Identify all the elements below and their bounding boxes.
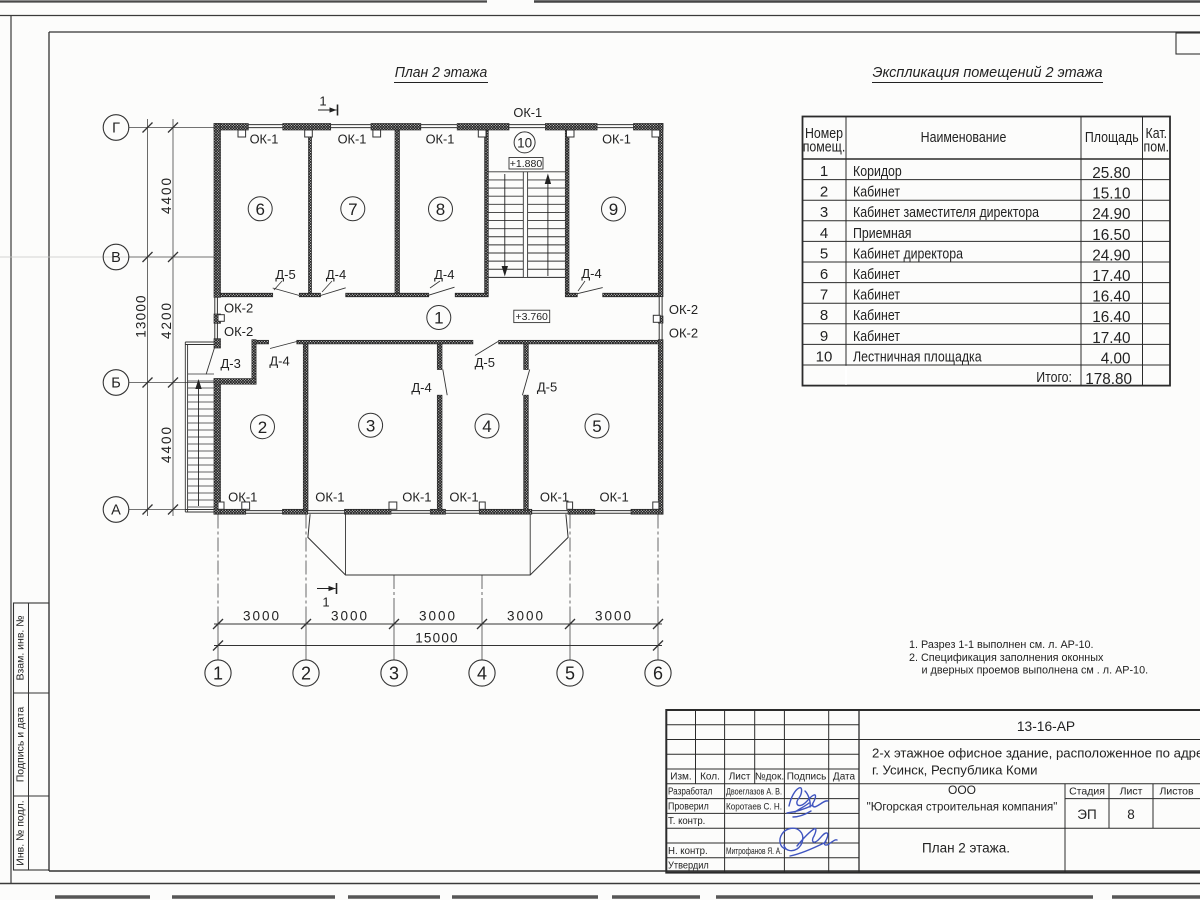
- svg-text:Кабинет: Кабинет: [853, 307, 900, 324]
- svg-text:ОК-1: ОК-1: [599, 490, 628, 505]
- svg-text:16.50: 16.50: [1092, 227, 1130, 244]
- svg-text:Д-4: Д-4: [434, 267, 454, 282]
- svg-text:Кабинет: Кабинет: [853, 328, 900, 345]
- svg-text:6: 6: [653, 664, 663, 684]
- svg-text:8: 8: [436, 200, 445, 219]
- svg-text:и дверных проемов выполнена см: и дверных проемов выполнена см . л. АР-1…: [922, 665, 1149, 677]
- svg-text:ОК-1: ОК-1: [513, 105, 542, 120]
- svg-text:Д-5: Д-5: [475, 355, 495, 370]
- svg-text:Взам. инв. №: Взам. инв. №: [15, 615, 27, 680]
- svg-text:3000: 3000: [595, 609, 633, 624]
- svg-text:4: 4: [820, 225, 828, 242]
- svg-text:Наименование: Наименование: [921, 129, 1007, 146]
- svg-text:А: А: [111, 503, 121, 519]
- svg-text:Д-3: Д-3: [221, 356, 241, 371]
- svg-text:Митрофанов Я. А.: Митрофанов Я. А.: [726, 846, 782, 856]
- svg-text:1: 1: [820, 163, 828, 180]
- svg-text:3000: 3000: [507, 609, 545, 624]
- svg-text:Коридор: Коридор: [853, 163, 902, 180]
- svg-text:Д-4: Д-4: [581, 266, 601, 281]
- svg-text:Коротаев С. Н.: Коротаев С. Н.: [726, 801, 782, 811]
- svg-text:ОК-1: ОК-1: [402, 490, 431, 505]
- svg-text:Кабинет: Кабинет: [853, 266, 900, 283]
- svg-text:Кол.: Кол.: [700, 771, 720, 782]
- svg-text:Лист: Лист: [1120, 786, 1143, 798]
- svg-text:3: 3: [389, 664, 399, 684]
- svg-text:ОК-1: ОК-1: [315, 490, 344, 505]
- svg-text:Кабинет заместителя директора: Кабинет заместителя директора: [853, 204, 1040, 221]
- svg-text:6: 6: [820, 266, 828, 283]
- svg-text:2: 2: [820, 184, 828, 201]
- svg-text:17.40: 17.40: [1092, 268, 1130, 285]
- svg-text:1: 1: [322, 595, 329, 610]
- svg-text:№док.: №док.: [755, 771, 784, 782]
- svg-text:8: 8: [820, 307, 828, 324]
- svg-text:13000: 13000: [134, 294, 149, 338]
- svg-text:13-16-АР: 13-16-АР: [1017, 719, 1075, 734]
- svg-text:2: 2: [258, 418, 267, 437]
- svg-text:Г: Г: [112, 121, 120, 137]
- svg-text:8: 8: [1127, 807, 1135, 822]
- svg-text:10: 10: [816, 348, 833, 365]
- svg-text:1. Разрез 1-1 выполнен см. л.: 1. Разрез 1-1 выполнен см. л. АР-10.: [909, 639, 1093, 651]
- svg-text:7: 7: [820, 287, 828, 304]
- svg-text:10: 10: [517, 135, 532, 150]
- svg-text:2-х этажное офисное здание, ра: 2-х этажное офисное здание, расположенно…: [872, 746, 1200, 761]
- svg-text:ОК-1: ОК-1: [540, 490, 569, 505]
- svg-text:17.40: 17.40: [1092, 330, 1130, 347]
- svg-text:24.90: 24.90: [1092, 247, 1130, 264]
- svg-text:Лестничная площадка: Лестничная площадка: [853, 348, 982, 365]
- svg-text:3: 3: [820, 204, 828, 221]
- svg-text:Инв. № подл.: Инв. № подл.: [15, 800, 27, 865]
- svg-text:16.40: 16.40: [1092, 309, 1130, 326]
- svg-text:Изм.: Изм.: [670, 771, 691, 782]
- svg-text:Подпись и дата: Подпись и дата: [15, 707, 27, 783]
- svg-text:2: 2: [301, 664, 311, 684]
- svg-text:+3.760: +3.760: [515, 311, 548, 323]
- svg-text:ОК-1: ОК-1: [602, 132, 631, 147]
- svg-text:Д-4: Д-4: [326, 267, 346, 282]
- svg-text:16.40: 16.40: [1092, 289, 1130, 306]
- svg-text:15000: 15000: [415, 631, 459, 646]
- svg-text:4200: 4200: [159, 301, 174, 339]
- svg-text:Н. контр.: Н. контр.: [668, 846, 708, 857]
- svg-text:ОК-1: ОК-1: [449, 490, 478, 505]
- svg-text:Подпись: Подпись: [787, 771, 827, 782]
- svg-text:Проверил: Проверил: [668, 801, 709, 812]
- svg-text:ОК-2: ОК-2: [669, 325, 698, 340]
- svg-text:пом.: пом.: [1144, 139, 1170, 156]
- svg-text:2. Спецификация заполнения око: 2. Спецификация заполнения оконных: [909, 652, 1104, 664]
- svg-text:3: 3: [366, 417, 375, 436]
- svg-text:4400: 4400: [159, 425, 174, 463]
- svg-text:5: 5: [820, 245, 828, 262]
- svg-text:ОК-1: ОК-1: [426, 132, 455, 147]
- svg-text:Лист: Лист: [729, 771, 751, 782]
- svg-text:помещ.: помещ.: [803, 139, 846, 156]
- svg-text:7: 7: [348, 200, 357, 219]
- svg-text:"Югорская строительная компани: "Югорская строительная компания": [867, 802, 1058, 814]
- svg-text:1: 1: [319, 94, 326, 109]
- svg-text:г. Усинск, Республика Коми: г. Усинск, Республика Коми: [872, 763, 1038, 778]
- svg-text:ООО: ООО: [948, 783, 976, 797]
- svg-text:4: 4: [477, 664, 487, 684]
- svg-text:9: 9: [820, 328, 828, 345]
- svg-text:15.10: 15.10: [1092, 186, 1130, 203]
- svg-text:Д-4: Д-4: [269, 354, 289, 369]
- svg-text:ОК-1: ОК-1: [338, 132, 367, 147]
- svg-text:ОК-1: ОК-1: [228, 490, 257, 505]
- svg-text:4.00: 4.00: [1101, 350, 1131, 367]
- svg-text:ОК-2: ОК-2: [669, 302, 698, 317]
- svg-text:1: 1: [434, 309, 443, 328]
- svg-text:6: 6: [255, 200, 264, 219]
- svg-text:В: В: [111, 250, 121, 266]
- svg-text:Кабинет: Кабинет: [853, 287, 900, 304]
- svg-text:25.80: 25.80: [1092, 165, 1130, 182]
- svg-text:План 2 этажа: План 2 этажа: [395, 64, 488, 81]
- svg-text:Экспликация помещений 2 этажа: Экспликация помещений 2 этажа: [873, 64, 1103, 81]
- svg-text:Двоеглазов А. В.: Двоеглазов А. В.: [726, 787, 782, 797]
- svg-text:Площадь: Площадь: [1085, 129, 1139, 146]
- svg-text:+1.880: +1.880: [510, 158, 543, 170]
- svg-text:Т. контр.: Т. контр.: [668, 816, 705, 827]
- svg-text:1: 1: [213, 664, 223, 684]
- svg-text:4: 4: [482, 417, 491, 436]
- svg-text:4400: 4400: [159, 176, 174, 214]
- svg-text:9: 9: [609, 200, 618, 219]
- svg-text:3000: 3000: [419, 609, 457, 624]
- svg-text:Кабинет: Кабинет: [853, 184, 900, 201]
- svg-text:Стадия: Стадия: [1069, 786, 1105, 798]
- svg-text:ЭП: ЭП: [1077, 807, 1096, 822]
- svg-text:Б: Б: [111, 376, 121, 392]
- svg-text:5: 5: [565, 664, 575, 684]
- svg-text:Д-4: Д-4: [411, 380, 431, 395]
- svg-text:178.80: 178.80: [1085, 371, 1132, 388]
- svg-text:Д-5: Д-5: [537, 380, 557, 395]
- svg-text:Кабинет директора: Кабинет директора: [853, 245, 964, 262]
- svg-text:План 2 этажа.: План 2 этажа.: [922, 841, 1010, 856]
- svg-text:24.90: 24.90: [1092, 206, 1130, 223]
- svg-text:Дата: Дата: [833, 771, 856, 782]
- svg-text:Приемная: Приемная: [853, 225, 911, 242]
- svg-text:3000: 3000: [243, 609, 281, 624]
- svg-text:ОК-2: ОК-2: [224, 301, 253, 316]
- svg-text:Разработал: Разработал: [668, 787, 713, 798]
- svg-text:Итого:: Итого:: [1036, 369, 1072, 386]
- svg-text:Д-5: Д-5: [275, 267, 295, 282]
- svg-text:3000: 3000: [331, 609, 369, 624]
- svg-text:Утвердил: Утвердил: [668, 861, 709, 872]
- svg-text:Листов: Листов: [1159, 786, 1194, 798]
- svg-text:5: 5: [592, 417, 601, 436]
- svg-text:ОК-2: ОК-2: [224, 324, 253, 339]
- svg-text:ОК-1: ОК-1: [250, 132, 279, 147]
